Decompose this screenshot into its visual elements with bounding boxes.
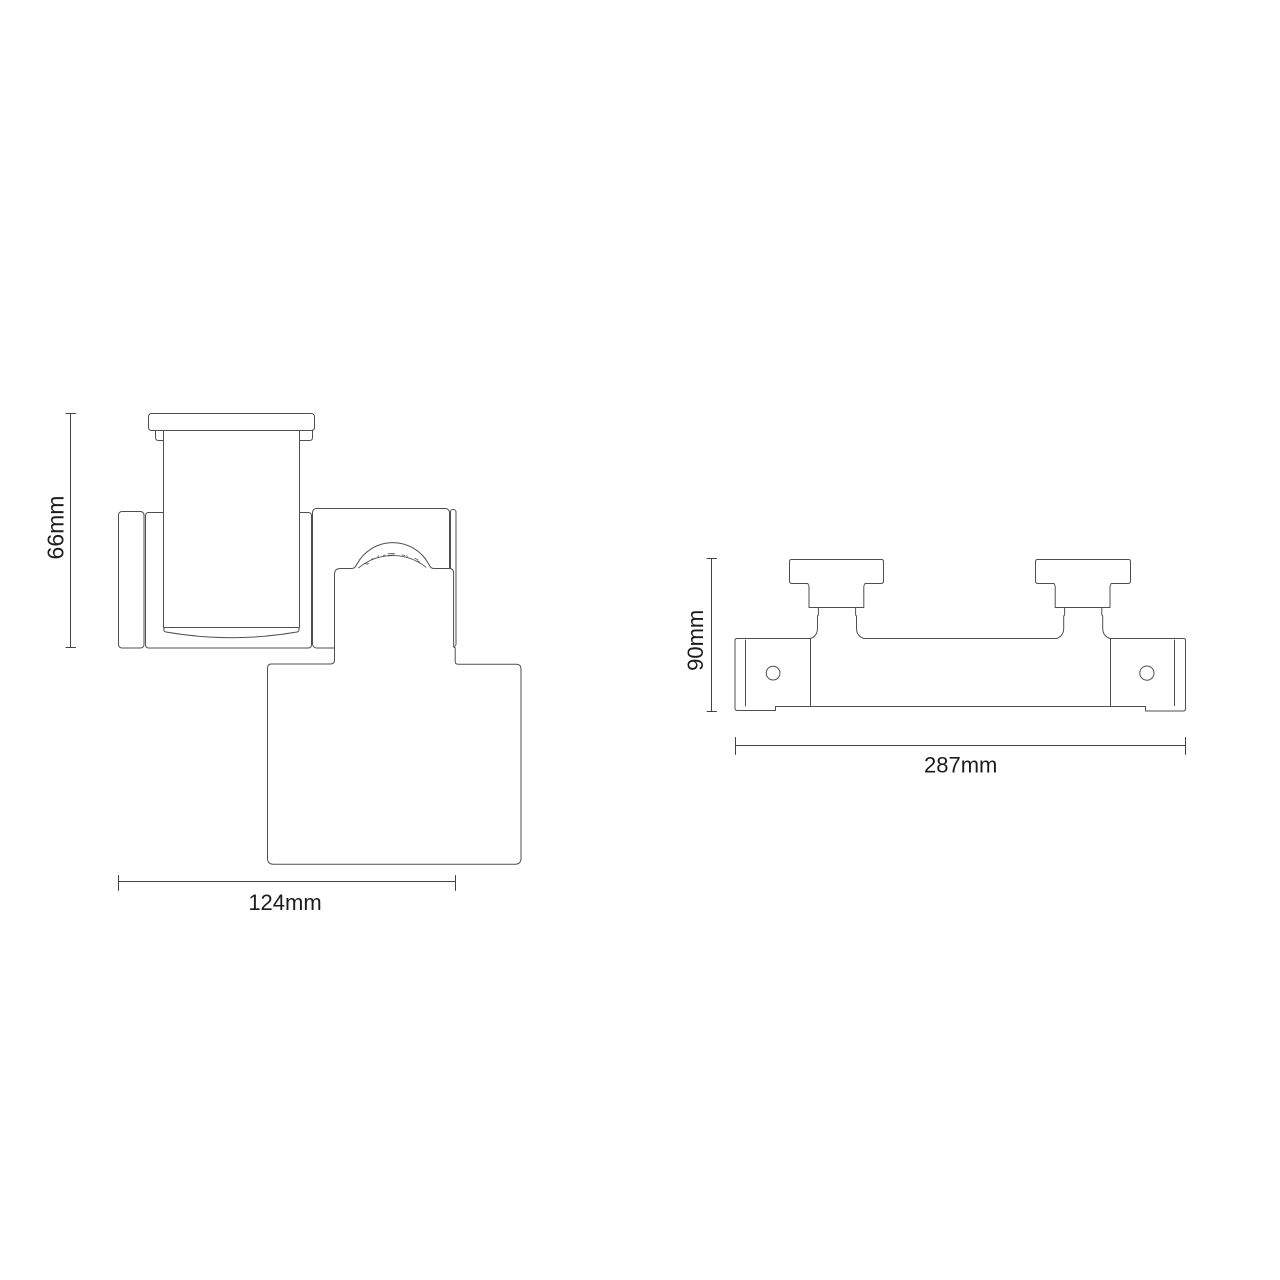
- svg-text:90mm: 90mm: [683, 610, 708, 671]
- svg-text:66mm: 66mm: [42, 496, 68, 560]
- svg-text:124mm: 124mm: [248, 890, 321, 915]
- svg-text:287mm: 287mm: [924, 753, 997, 778]
